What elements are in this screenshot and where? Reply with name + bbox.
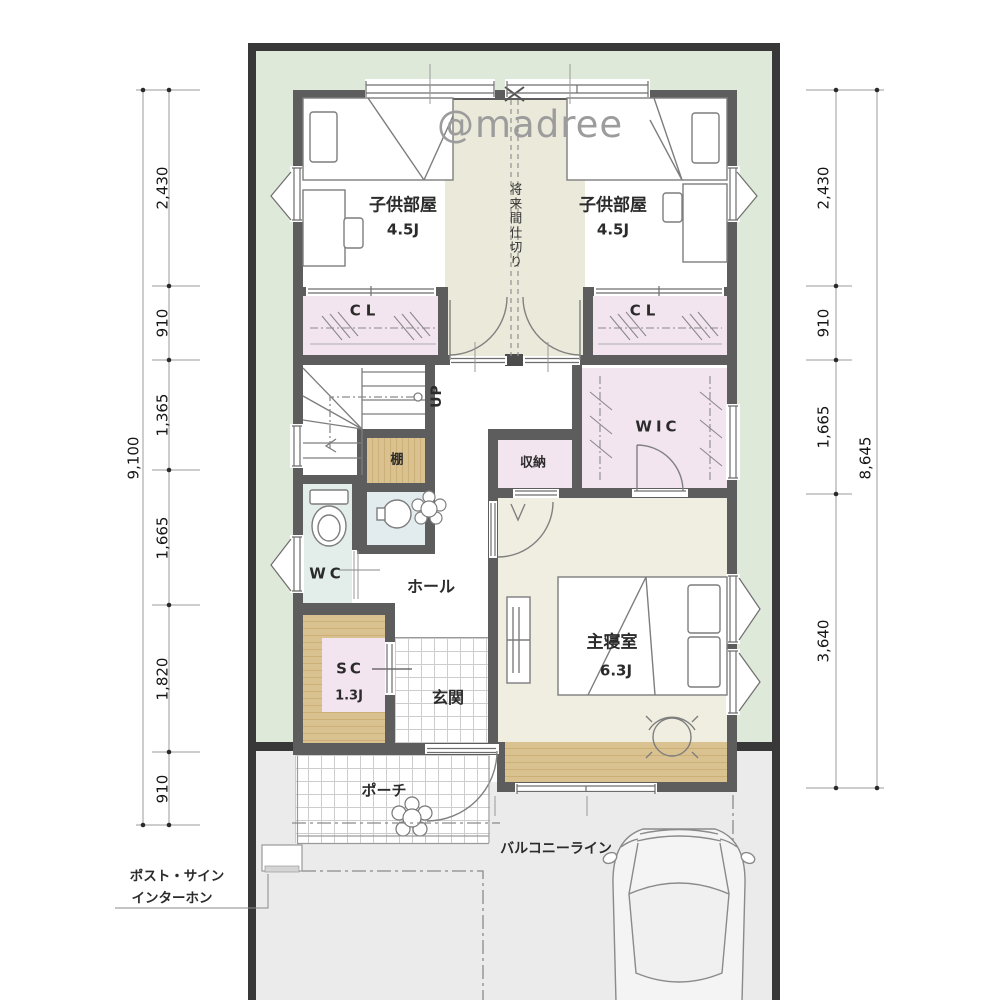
label-wic: WIC [635, 420, 680, 435]
label-entrance: 玄関 [432, 690, 464, 706]
label-future-partition: 将来間仕切り [506, 183, 525, 270]
door-sc-gap [385, 642, 395, 695]
label-closet-left: CL [350, 304, 381, 319]
dim-left-3: 1,665 [156, 517, 171, 560]
dim-left-4: 1,820 [156, 658, 171, 701]
window-east-bedroom-2 [726, 649, 740, 715]
site-border-left [248, 43, 256, 1000]
label-intercom: インターホン [132, 892, 213, 906]
label-post-sign: ポスト・サイン [130, 870, 225, 884]
wall-shelf-top [357, 429, 435, 438]
floor-master-bedroom [498, 498, 727, 742]
wall-corridor-door-stub [505, 354, 523, 366]
door-front-gap [425, 744, 499, 754]
room-size-child-left: 4.5J [387, 223, 419, 238]
door-corridor-left-gap [450, 356, 507, 365]
window-south-bedroom [515, 783, 657, 793]
window-east-bedroom-1 [726, 574, 740, 644]
label-up: UP [430, 384, 444, 408]
site-border-right [772, 43, 780, 1000]
site-green-end-bar-right [737, 742, 772, 751]
wall-wc-top [293, 475, 367, 484]
wall-sc-top [293, 603, 395, 615]
label-wc: WC [309, 567, 345, 582]
site-border-top [248, 43, 780, 51]
label-storage: 収納 [520, 457, 546, 470]
dim-right-1: 910 [817, 309, 832, 338]
door-bedroom-gap [489, 501, 497, 558]
window-top-right [505, 79, 650, 98]
door-storage-gap [513, 489, 559, 498]
room-size-master: 6.3J [600, 664, 632, 679]
dim-left-5: 910 [156, 775, 171, 804]
room-label-child-left: 子供部屋 [369, 198, 437, 215]
floor-wash-nook [367, 492, 425, 545]
label-sc: SC [336, 662, 364, 677]
dim-right-total: 8,645 [859, 437, 874, 480]
window-top-left [365, 79, 495, 98]
dim-left-0: 2,430 [156, 167, 171, 210]
room-label-child-right: 子供部屋 [579, 198, 647, 215]
wall-storage-top [488, 429, 582, 440]
dim-right-0: 2,430 [817, 167, 832, 210]
label-porch: ポーチ [361, 784, 406, 799]
label-shelf: 棚 [390, 454, 403, 467]
label-hall: ホール [407, 579, 455, 595]
window-west-stairs [290, 424, 304, 468]
window-east-wic [726, 404, 740, 480]
wall-corridor-right [583, 287, 593, 365]
wall-wc-east [352, 484, 361, 550]
label-balcony-line: バルコニーライン [500, 842, 612, 856]
door-cl-right-sliding [594, 286, 724, 296]
door-corridor-right-gap [523, 356, 580, 365]
label-sc-size: 1.3J [335, 690, 363, 703]
wall-shelf-bottom [357, 483, 435, 492]
dim-left-1: 910 [156, 309, 171, 338]
door-wic-gap [632, 489, 688, 497]
floor-wc [303, 484, 352, 603]
site-green-end-bar-left [256, 742, 293, 751]
room-size-child-right: 4.5J [597, 223, 629, 238]
dim-right-2: 1,665 [817, 406, 832, 449]
floor-deck [505, 742, 727, 782]
wall-storage-east-wic-west [572, 360, 582, 498]
label-closet-right: CL [630, 304, 661, 319]
dim-left-2: 1,365 [156, 394, 171, 437]
wall-corridor-left [438, 287, 448, 365]
window-west-child [290, 166, 304, 222]
dim-left-total: 9,100 [127, 437, 142, 480]
window-east-child [726, 166, 740, 222]
dim-right-3: 3,640 [817, 620, 832, 663]
floor-plan: @madree 子供部屋 4.5J 子供部屋 4.5J 将来間仕切り CL CL… [0, 0, 1000, 1000]
room-label-master: 主寝室 [587, 635, 638, 652]
door-cl-left-sliding [306, 286, 436, 296]
wall-cl-bottom-right [580, 355, 737, 365]
watermark: @madree [437, 103, 623, 146]
wall-nook-bottom [357, 545, 435, 554]
window-west-wc [290, 535, 304, 593]
